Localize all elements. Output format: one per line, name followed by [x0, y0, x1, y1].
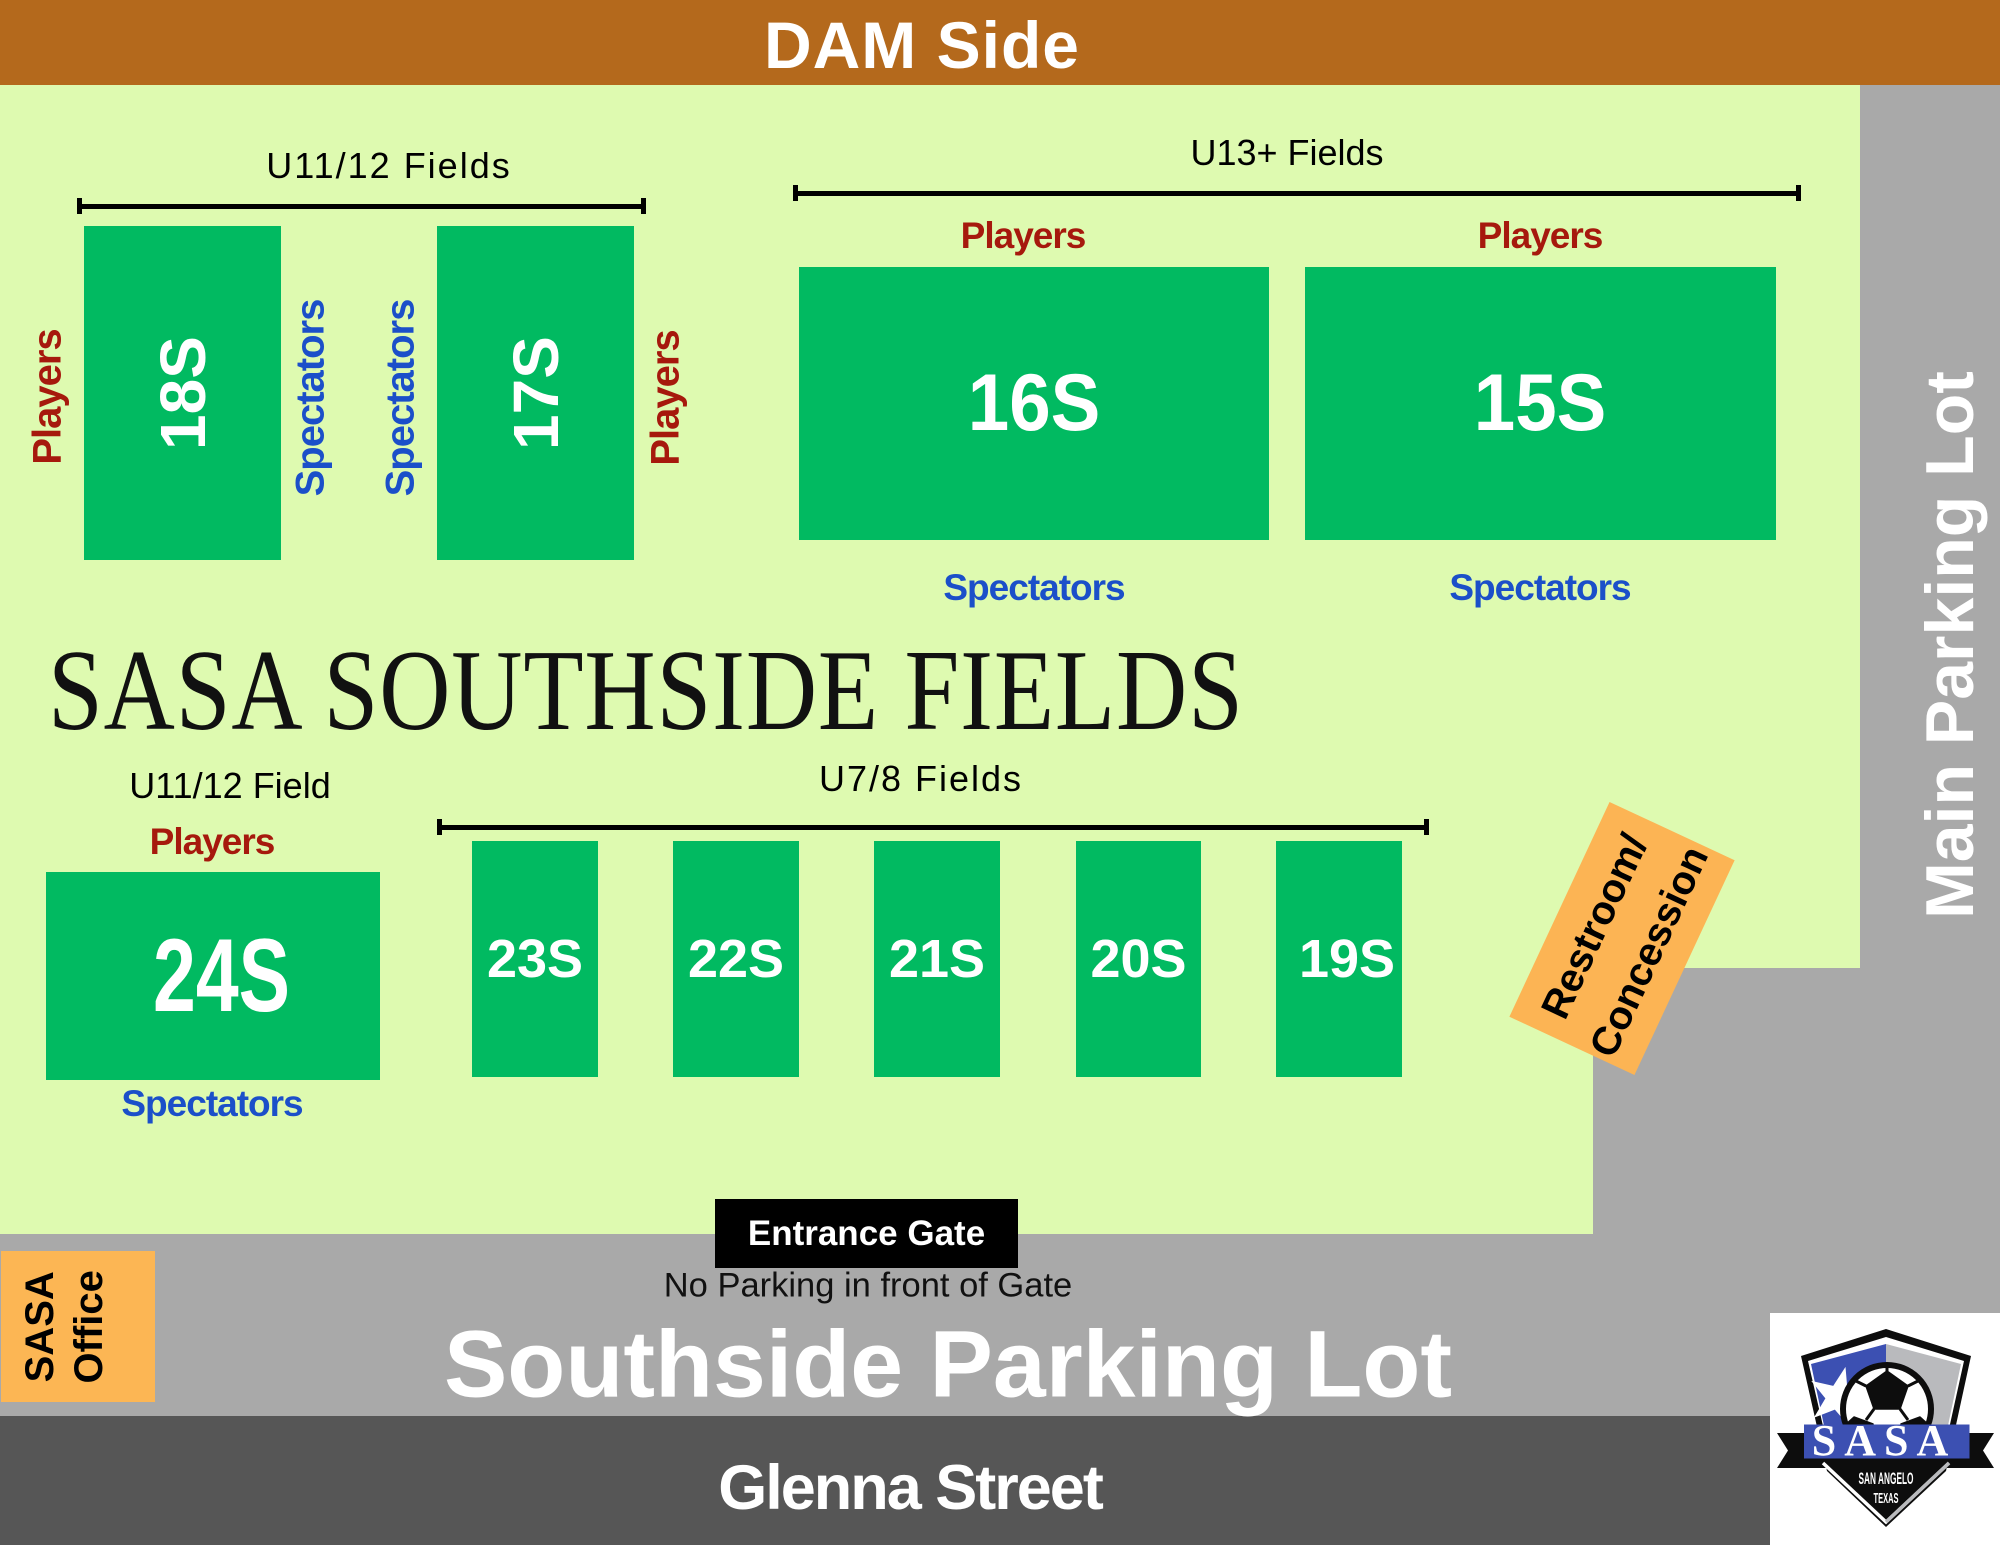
svg-text:SASA: SASA	[1812, 1416, 1957, 1465]
svg-text:SAN ANGELO: SAN ANGELO	[1859, 1469, 1914, 1488]
svg-text:TEXAS: TEXAS	[1874, 1490, 1899, 1507]
